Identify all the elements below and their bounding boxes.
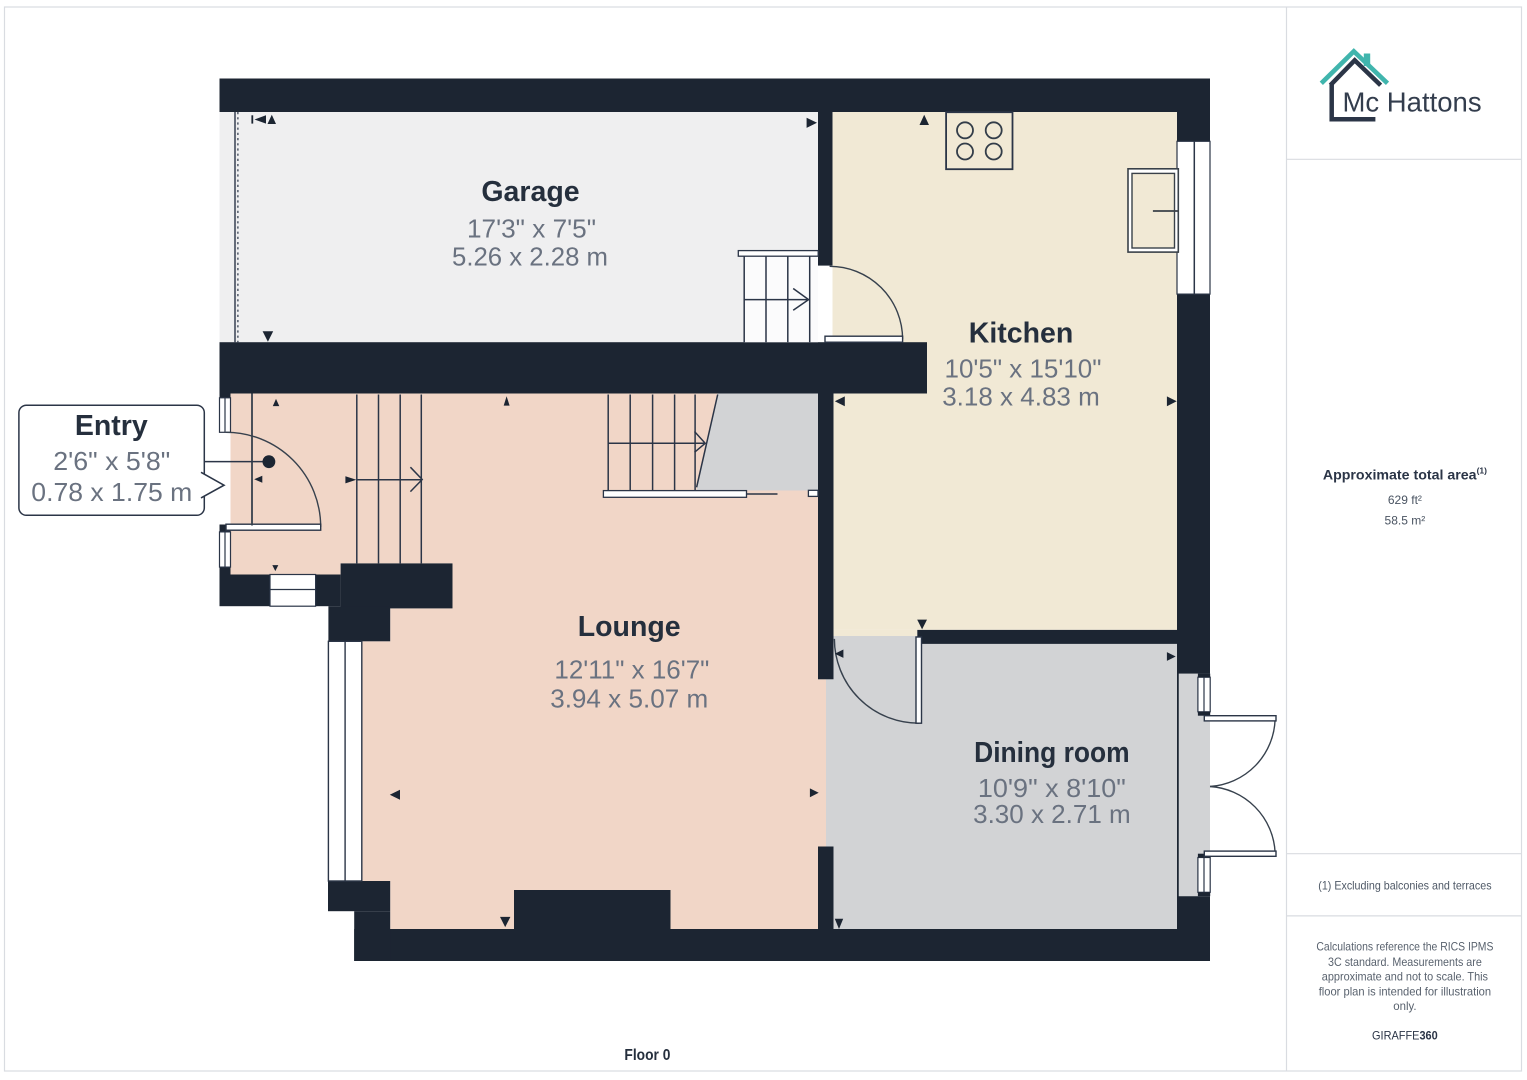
svg-text:floor plan is intended for ill: floor plan is intended for illustration: [1319, 985, 1491, 999]
svg-text:2'6" x 5'8": 2'6" x 5'8": [53, 446, 170, 476]
svg-text:Approximate total area(1): Approximate total area(1): [1323, 465, 1487, 483]
svg-text:629 ft²: 629 ft²: [1388, 493, 1422, 507]
svg-text:3.18 x 4.83 m: 3.18 x 4.83 m: [942, 382, 1100, 412]
svg-text:approximate and not to scale.: approximate and not to scale. This: [1322, 970, 1488, 984]
svg-text:Mc Hattons: Mc Hattons: [1343, 87, 1482, 118]
svg-text:Calculations reference the RIC: Calculations reference the RICS IPMS: [1316, 939, 1493, 953]
svg-text:Floor 0: Floor 0: [624, 1047, 670, 1064]
svg-text:58.5 m²: 58.5 m²: [1385, 514, 1426, 528]
svg-text:3C standard. Measurements are: 3C standard. Measurements are: [1328, 955, 1482, 969]
svg-text:Garage: Garage: [481, 176, 579, 208]
svg-text:only.: only.: [1393, 999, 1416, 1013]
svg-text:Entry: Entry: [75, 410, 148, 442]
svg-text:0.78 x 1.75 m: 0.78 x 1.75 m: [31, 477, 192, 507]
svg-text:Lounge: Lounge: [578, 611, 681, 643]
svg-text:3.30 x 2.71 m: 3.30 x 2.71 m: [973, 799, 1131, 829]
svg-text:5.26 x 2.28 m: 5.26 x 2.28 m: [452, 242, 608, 272]
svg-text:10'5" x 15'10": 10'5" x 15'10": [945, 353, 1102, 383]
svg-text:12'11" x 16'7": 12'11" x 16'7": [554, 654, 709, 684]
svg-text:Kitchen: Kitchen: [969, 318, 1074, 350]
svg-text:17'3" x 7'5": 17'3" x 7'5": [467, 213, 596, 243]
svg-text:GIRAFFE360: GIRAFFE360: [1372, 1029, 1438, 1042]
svg-text:Dining room: Dining room: [974, 737, 1130, 769]
svg-text:(1) Excluding balconies and te: (1) Excluding balconies and terraces: [1318, 878, 1491, 892]
svg-text:3.94 x 5.07 m: 3.94 x 5.07 m: [550, 684, 708, 714]
